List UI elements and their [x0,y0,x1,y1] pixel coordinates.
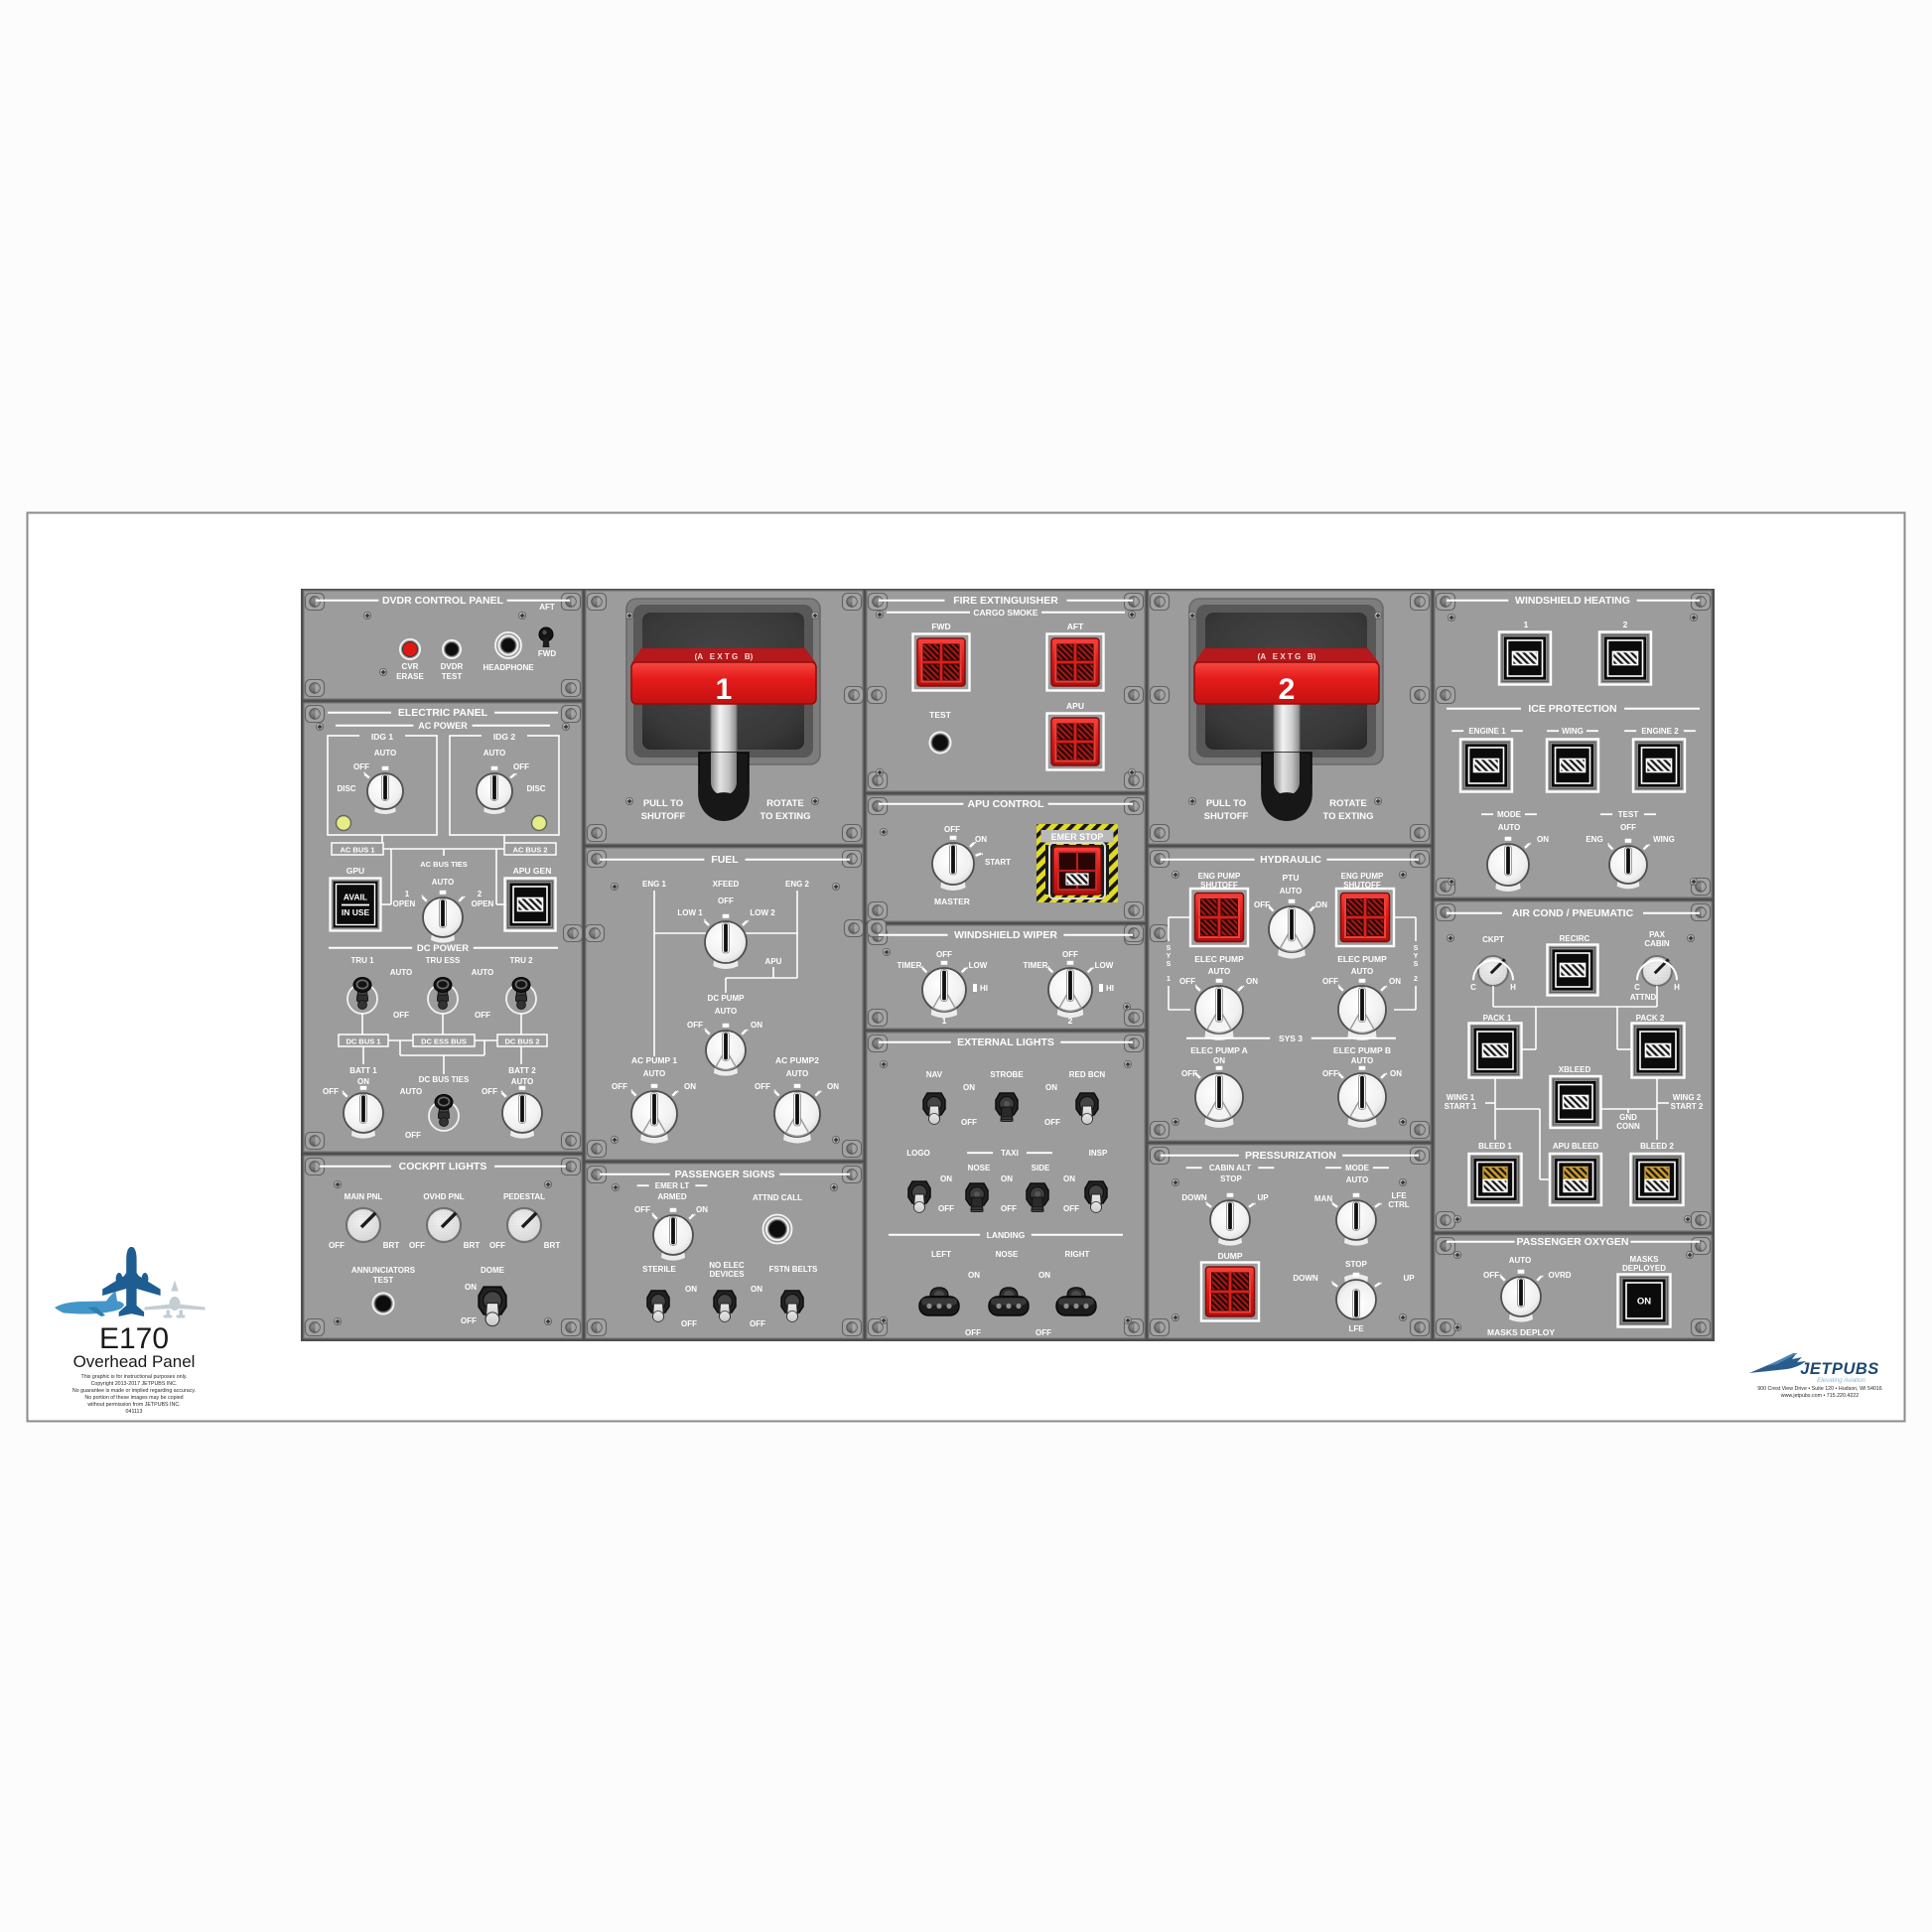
svg-text:DOME: DOME [481,1266,505,1275]
svg-text:LEFT: LEFT [931,1250,951,1259]
svg-text:PULL TO: PULL TO [1206,798,1246,809]
svg-text:LOGO: LOGO [906,1149,930,1158]
svg-text:PAX: PAX [1649,930,1666,939]
svg-text:AC PUMP2: AC PUMP2 [775,1055,819,1065]
svg-text:AFT: AFT [539,603,555,612]
svg-text:INSP: INSP [1089,1149,1108,1158]
svg-text:ON: ON [1213,1056,1225,1065]
svg-text:BATT 2: BATT 2 [508,1066,536,1075]
svg-text:ON: ON [1390,1069,1402,1078]
svg-text:TIMER: TIMER [897,961,922,970]
svg-text:AUTO: AUTO [432,878,455,887]
svg-text:DEVICES: DEVICES [709,1270,745,1279]
svg-text:PRESSURIZATION: PRESSURIZATION [1245,1150,1336,1162]
svg-text:COCKPIT LIGHTS: COCKPIT LIGHTS [399,1161,487,1173]
svg-text:OFF: OFF [634,1205,650,1214]
svg-text:IDG 1: IDG 1 [371,732,393,742]
svg-text:AUTO: AUTO [1351,967,1374,976]
svg-text:C: C [1470,983,1476,992]
svg-text:ON: ON [827,1082,839,1091]
svg-text:AUTO: AUTO [786,1069,809,1078]
svg-text:ON: ON [1038,1271,1050,1280]
svg-text:OFF: OFF [681,1319,697,1328]
svg-text:OFF: OFF [718,897,734,905]
svg-text:TRU 2: TRU 2 [509,956,533,965]
svg-text:OFF: OFF [405,1131,421,1140]
svg-text:www.jetpubs.com • 715.220.4222: www.jetpubs.com • 715.220.4222 [1781,1393,1859,1399]
svg-text:E170: E170 [99,1322,169,1355]
svg-text:TIMER: TIMER [1024,961,1048,970]
svg-text:OFF: OFF [1322,1069,1338,1078]
svg-text:No portion of these images may: No portion of these images may be copied [84,1395,183,1401]
svg-text:MODE: MODE [1497,810,1522,819]
svg-text:BRT: BRT [383,1241,400,1250]
svg-text:OFF: OFF [1035,1328,1051,1337]
svg-text:TO EXTING: TO EXTING [759,811,810,822]
svg-text:Copyright 2013-2017 JETPUBS IN: Copyright 2013-2017 JETPUBS INC. [91,1381,178,1387]
svg-text:ERASE: ERASE [396,672,424,681]
svg-text:ON: ON [357,1077,369,1086]
svg-text:PULL TO: PULL TO [643,798,683,809]
svg-text:SIDE: SIDE [1032,1164,1050,1173]
svg-text:OFF: OFF [1322,977,1338,986]
svg-text:Y: Y [1167,953,1172,960]
svg-text:GPU: GPU [346,866,364,876]
svg-text:ENG PUMP: ENG PUMP [1341,872,1384,881]
svg-text:ENGINE 2: ENGINE 2 [1641,727,1679,736]
svg-text:ATTND: ATTND [1630,993,1657,1002]
svg-text:H: H [1510,983,1516,992]
svg-text:No guarantee is made or implie: No guarantee is made or implied regardin… [72,1388,196,1394]
svg-text:STERILE: STERILE [642,1265,676,1274]
svg-text:OFF: OFF [750,1319,765,1328]
svg-text:DOWN: DOWN [1181,1193,1207,1202]
svg-text:AUTO: AUTO [643,1069,666,1078]
svg-text:ROTATE: ROTATE [766,798,804,809]
svg-text:PASSENGER OXYGEN: PASSENGER OXYGEN [1517,1236,1629,1248]
svg-text:SHUTOFF: SHUTOFF [1204,811,1249,822]
svg-text:UP: UP [1403,1274,1415,1283]
svg-text:OFF: OFF [1044,1118,1060,1127]
svg-text:AUTO: AUTO [1509,1256,1532,1265]
svg-text:LOW: LOW [1095,961,1114,970]
svg-text:MODE: MODE [1345,1164,1370,1173]
svg-text:(A E X T G B): (A E X T G B) [1258,652,1316,661]
svg-text:AUTO: AUTO [715,1007,738,1016]
svg-text:AUTO: AUTO [1351,1056,1374,1065]
svg-text:OFF: OFF [936,950,952,959]
svg-text:IDG 2: IDG 2 [493,732,515,742]
svg-text:DISC: DISC [526,784,545,793]
svg-text:HYDRAULIC: HYDRAULIC [1260,854,1321,866]
svg-text:OFF: OFF [1181,1069,1197,1078]
svg-text:ON: ON [1389,977,1401,986]
svg-text:DC BUS 1: DC BUS 1 [345,1037,380,1046]
svg-text:APU: APU [1066,701,1084,711]
svg-text:OFF: OFF [965,1328,981,1337]
svg-text:OFF: OFF [612,1082,627,1091]
svg-text:ON: ON [1045,1083,1057,1092]
svg-text:TEST: TEST [373,1276,394,1285]
svg-text:NO ELEC: NO ELEC [709,1261,745,1270]
svg-text:NAV: NAV [926,1070,943,1079]
svg-text:EXTERNAL LIGHTS: EXTERNAL LIGHTS [957,1036,1054,1048]
svg-text:SYS 3: SYS 3 [1279,1034,1303,1043]
svg-text:DUMP: DUMP [1217,1251,1242,1261]
svg-text:CABIN: CABIN [1644,939,1670,948]
svg-text:S: S [1414,961,1419,968]
svg-text:AUTO: AUTO [374,749,397,758]
svg-text:1: 1 [1167,976,1171,983]
svg-text:ARMED: ARMED [657,1192,687,1201]
svg-text:2: 2 [1068,1016,1073,1026]
svg-text:FUEL: FUEL [711,854,739,866]
svg-text:APU: APU [765,957,782,966]
svg-text:XFEED: XFEED [713,880,740,889]
svg-text:1: 1 [405,890,410,898]
svg-text:OFF: OFF [755,1082,770,1091]
svg-text:ENG: ENG [1586,835,1602,844]
svg-text:OFF: OFF [353,762,369,771]
svg-text:LOW 1: LOW 1 [677,908,703,917]
svg-text:GND: GND [1619,1113,1637,1122]
svg-text:ENG PUMP: ENG PUMP [1198,872,1241,881]
svg-text:ATTND CALL: ATTND CALL [753,1193,802,1202]
svg-text:NOSE: NOSE [968,1164,991,1173]
svg-text:TO EXTING: TO EXTING [1322,811,1373,822]
svg-text:FWD: FWD [538,649,556,658]
svg-text:CVR: CVR [402,662,419,671]
svg-text:AUTO: AUTO [1346,1175,1369,1184]
svg-text:ELECTRIC PANEL: ELECTRIC PANEL [398,707,488,719]
svg-text:OFF: OFF [475,1011,490,1020]
svg-text:PACK 1: PACK 1 [1483,1014,1512,1023]
svg-text:(A E X T G B): (A E X T G B) [695,652,754,661]
svg-text:without permission from JETPUB: without permission from JETPUBS INC. [87,1402,180,1408]
svg-text:BLEED 1: BLEED 1 [1478,1142,1512,1151]
svg-text:AUTO: AUTO [390,968,413,977]
svg-text:OVRD: OVRD [1548,1271,1571,1280]
svg-text:TEST: TEST [442,672,463,681]
svg-text:DVDR: DVDR [441,662,464,671]
svg-text:WINDSHIELD HEATING: WINDSHIELD HEATING [1515,595,1630,607]
svg-text:ANNUNCIATORS: ANNUNCIATORS [351,1266,416,1275]
svg-text:ROTATE: ROTATE [1329,798,1367,809]
svg-text:AC PUMP 1: AC PUMP 1 [631,1055,677,1065]
svg-text:Overhead Panel: Overhead Panel [73,1352,196,1371]
svg-text:LANDING: LANDING [987,1230,1026,1240]
svg-text:1: 1 [1524,620,1529,629]
svg-text:CABIN ALT: CABIN ALT [1209,1164,1251,1173]
svg-text:ELEC PUMP: ELEC PUMP [1194,954,1244,964]
svg-text:ON: ON [685,1285,697,1294]
svg-text:AVAIL: AVAIL [344,893,367,902]
svg-text:WINDSHIELD WIPER: WINDSHIELD WIPER [954,929,1057,941]
svg-text:OFF: OFF [489,1241,505,1250]
svg-text:S: S [1414,945,1419,952]
svg-text:DOWN: DOWN [1293,1274,1318,1283]
svg-text:ON: ON [1637,1297,1651,1308]
svg-text:DC ESS BUS: DC ESS BUS [421,1037,467,1046]
svg-text:JETPUBS: JETPUBS [1800,1360,1879,1378]
svg-text:RECIRC: RECIRC [1560,934,1590,943]
svg-text:LFE: LFE [1348,1324,1364,1333]
svg-text:2: 2 [478,890,483,898]
svg-text:ON: ON [1001,1174,1013,1183]
svg-text:OFF: OFF [1063,1204,1079,1213]
svg-text:AC BUS TIES: AC BUS TIES [420,860,468,869]
svg-text:S: S [1167,945,1172,952]
svg-text:FIRE EXTINGUISHER: FIRE EXTINGUISHER [953,595,1058,607]
svg-text:CARGO SMOKE: CARGO SMOKE [973,608,1038,618]
svg-text:ON: ON [1315,900,1327,909]
svg-text:SHUTOFF: SHUTOFF [641,811,686,822]
svg-text:PEDESTAL: PEDESTAL [503,1192,545,1201]
svg-text:ON: ON [968,1271,980,1280]
svg-text:HI: HI [980,984,988,993]
svg-text:OPEN: OPEN [393,899,416,908]
svg-text:WING 1: WING 1 [1447,1093,1475,1102]
svg-text:ON: ON [751,1021,762,1030]
svg-text:MAIN PNL: MAIN PNL [345,1192,383,1201]
svg-text:ON: ON [1537,835,1549,844]
svg-text:DISC: DISC [337,784,355,793]
svg-text:041113: 041113 [126,1409,143,1415]
svg-text:UP: UP [1257,1193,1269,1202]
svg-text:AC BUS 1: AC BUS 1 [340,846,374,855]
svg-text:OPEN: OPEN [472,899,494,908]
svg-text:TEST: TEST [1618,810,1639,819]
svg-text:ON: ON [751,1285,762,1294]
svg-text:DC BUS TIES: DC BUS TIES [419,1075,470,1084]
svg-text:OFF: OFF [1179,977,1195,986]
svg-text:BATT 1: BATT 1 [349,1066,377,1075]
svg-text:ELEC PUMP A: ELEC PUMP A [1190,1045,1248,1055]
svg-text:AFT: AFT [1067,621,1084,631]
svg-text:MASKS: MASKS [1630,1255,1660,1264]
svg-text:AUTO: AUTO [400,1087,423,1096]
svg-text:PACK 2: PACK 2 [1636,1014,1665,1023]
svg-text:AUTO: AUTO [1280,887,1303,896]
svg-text:BLEED 2: BLEED 2 [1640,1142,1674,1151]
svg-text:ICE PROTECTION: ICE PROTECTION [1528,703,1616,715]
svg-text:2: 2 [1414,976,1418,983]
svg-text:MAN: MAN [1314,1194,1332,1203]
svg-text:TRU ESS: TRU ESS [426,956,461,965]
svg-text:PASSENGER SIGNS: PASSENGER SIGNS [675,1169,775,1180]
svg-text:OFF: OFF [513,762,529,771]
svg-text:OFF: OFF [938,1204,954,1213]
svg-text:PTU: PTU [1283,873,1300,883]
svg-text:LOW: LOW [969,961,988,970]
svg-text:ON: ON [963,1083,975,1092]
svg-text:AUTO: AUTO [1498,823,1521,832]
svg-text:OFF: OFF [1254,900,1270,909]
svg-text:BRT: BRT [464,1241,481,1250]
svg-text:EMER STOP: EMER STOP [1051,832,1104,842]
svg-text:HEADPHONE: HEADPHONE [483,663,534,672]
svg-text:ENG 2: ENG 2 [785,880,810,889]
svg-text:DC BUS 2: DC BUS 2 [504,1037,539,1046]
svg-text:OFF: OFF [1483,1271,1499,1280]
svg-text:OFF: OFF [409,1241,425,1250]
svg-text:OFF: OFF [961,1118,977,1127]
svg-text:ON: ON [465,1283,477,1292]
svg-text:ELEC PUMP B: ELEC PUMP B [1333,1045,1391,1055]
svg-text:ON: ON [684,1082,696,1091]
svg-text:TEST: TEST [929,710,952,720]
svg-text:ENGINE 1: ENGINE 1 [1468,727,1506,736]
svg-text:ENG 1: ENG 1 [642,880,667,889]
svg-text:OFF: OFF [461,1316,477,1325]
svg-text:OFF: OFF [1620,823,1636,832]
svg-text:2: 2 [1623,620,1628,629]
svg-text:ELEC PUMP: ELEC PUMP [1337,954,1387,964]
svg-text:XBLEED: XBLEED [1559,1065,1591,1074]
svg-text:DC POWER: DC POWER [417,943,469,954]
svg-text:MASTER: MASTER [934,897,970,906]
svg-text:DVDR CONTROL PANEL: DVDR CONTROL PANEL [382,595,504,607]
svg-text:APU GEN: APU GEN [513,866,552,876]
svg-text:WING: WING [1562,727,1584,736]
svg-text:BRT: BRT [544,1241,561,1250]
svg-text:NOSE: NOSE [996,1250,1019,1259]
svg-text:Y: Y [1414,953,1419,960]
svg-text:RIGHT: RIGHT [1065,1250,1090,1259]
svg-text:OFF: OFF [323,1087,339,1096]
svg-text:OFF: OFF [687,1021,703,1030]
svg-text:H: H [1674,983,1680,992]
svg-text:DEPLOYED: DEPLOYED [1622,1264,1666,1273]
svg-text:HI: HI [1106,984,1114,993]
svg-text:This graphic is for instructio: This graphic is for instructional purpos… [80,1374,187,1380]
svg-text:TRU 1: TRU 1 [350,956,374,965]
svg-text:1: 1 [716,673,733,706]
svg-text:AC POWER: AC POWER [418,721,468,731]
svg-text:ON: ON [940,1174,952,1183]
svg-text:WING: WING [1653,835,1675,844]
svg-text:ON: ON [975,835,987,844]
svg-text:S: S [1167,961,1172,968]
svg-text:AUTO: AUTO [1208,967,1231,976]
svg-text:START 2: START 2 [1671,1102,1704,1111]
svg-text:ON: ON [1063,1174,1075,1183]
svg-text:APU CONTROL: APU CONTROL [968,798,1045,810]
svg-text:LOW 2: LOW 2 [750,908,775,917]
svg-text:ON: ON [696,1205,708,1214]
svg-text:DC PUMP: DC PUMP [708,994,746,1003]
svg-text:TAXI: TAXI [1001,1149,1019,1158]
svg-text:CTRL: CTRL [1388,1200,1409,1209]
svg-text:OFF: OFF [482,1087,497,1096]
svg-text:900 Crest View Drive • Suite 1: 900 Crest View Drive • Suite 120 • Hudso… [1757,1386,1882,1392]
svg-text:LFE: LFE [1391,1191,1407,1200]
svg-text:APU BLEED: APU BLEED [1553,1142,1598,1151]
svg-text:OFF: OFF [329,1241,345,1250]
svg-text:FWD: FWD [931,621,950,631]
svg-text:FSTN BELTS: FSTN BELTS [769,1265,818,1274]
svg-text:ON: ON [1246,977,1258,986]
svg-text:OVHD PNL: OVHD PNL [423,1192,464,1201]
svg-text:STOP: STOP [1220,1174,1242,1183]
svg-text:START: START [985,858,1011,867]
svg-text:AC BUS 2: AC BUS 2 [512,846,547,855]
svg-text:AIR COND / PNEUMATIC: AIR COND / PNEUMATIC [1512,907,1634,919]
svg-text:CONN: CONN [1616,1122,1640,1131]
svg-text:EMER LT: EMER LT [655,1181,690,1190]
svg-text:STOP: STOP [1345,1260,1367,1269]
svg-text:OFF: OFF [1062,950,1078,959]
svg-text:1: 1 [942,1016,947,1026]
svg-text:OFF: OFF [393,1011,409,1020]
svg-text:2: 2 [1279,673,1296,706]
svg-text:AUTO: AUTO [511,1077,534,1086]
svg-text:C: C [1634,983,1640,992]
svg-text:WING 2: WING 2 [1673,1093,1702,1102]
svg-text:AUTO: AUTO [483,749,506,758]
svg-text:OFF: OFF [944,825,960,834]
svg-text:CKPT: CKPT [1482,935,1504,944]
svg-text:AUTO: AUTO [472,968,494,977]
svg-text:START 1: START 1 [1445,1102,1477,1111]
svg-text:Elevating Aviation: Elevating Aviation [1817,1377,1865,1384]
svg-text:IN USE: IN USE [342,907,370,917]
svg-text:RED BCN: RED BCN [1069,1070,1106,1079]
svg-text:STROBE: STROBE [990,1070,1024,1079]
svg-text:MASKS DEPLOY: MASKS DEPLOY [1487,1327,1555,1337]
svg-text:OFF: OFF [1001,1204,1017,1213]
